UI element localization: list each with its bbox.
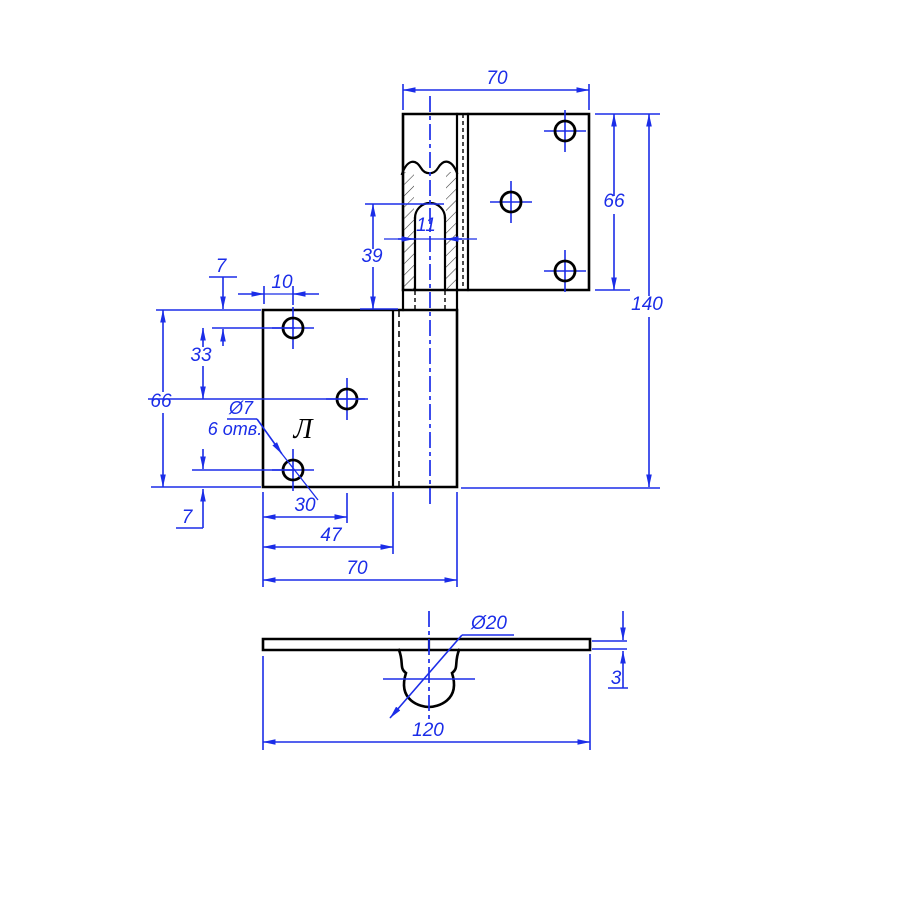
hatch-right-wall xyxy=(446,172,456,290)
dim-knuckle-offset-label: 39 xyxy=(361,246,383,267)
dim-hole-x-far-label: 47 xyxy=(320,525,343,546)
hole xyxy=(490,181,532,223)
dim-hole-edge-bottom: 7 xyxy=(176,449,295,528)
dim-total-length-label: 120 xyxy=(412,720,444,741)
dimensions-front: 70 66 140 39 11 xyxy=(148,68,663,587)
leaf-strip-outline xyxy=(263,639,590,650)
dim-hole-x-far: 47 xyxy=(263,492,393,554)
hole xyxy=(544,250,586,292)
dim-thickness: 3 xyxy=(592,611,628,689)
dim-hole-edge-top: 7 xyxy=(156,256,295,346)
hole-note-diameter: Ø7 xyxy=(228,398,254,418)
hole xyxy=(544,110,586,152)
dim-hole-spacing-label: 33 xyxy=(190,345,212,366)
screw-holes-top-leaf xyxy=(490,110,586,292)
technical-drawing-canvas: Л xyxy=(0,0,900,900)
dim-hole-edge-side-label: 10 xyxy=(271,272,293,293)
front-view: Л xyxy=(263,96,589,504)
dim-hole-edge-bottom-label: 7 xyxy=(182,507,194,528)
dim-thickness-label: 3 xyxy=(611,668,622,689)
drawing-sheet: Л xyxy=(0,0,900,900)
hatch-left-wall xyxy=(404,172,414,290)
dim-left-plate-width: 70 xyxy=(263,492,457,587)
dim-top-width-label: 70 xyxy=(486,68,508,89)
dim-hole-edge-side: 10 xyxy=(238,272,319,305)
dim-pin-slot-label: 11 xyxy=(416,215,436,236)
dim-knuckle-diameter: Ø20 xyxy=(390,613,514,718)
dim-total-height: 140 xyxy=(461,114,663,488)
dim-left-plate-width-label: 70 xyxy=(346,558,368,579)
dim-top-width: 70 xyxy=(403,68,589,110)
dim-plate-height-label: 66 xyxy=(603,191,625,212)
dim-hole-spacing: 33 xyxy=(148,328,365,399)
dim-plate-height: 66 xyxy=(595,114,660,290)
dim-hole-x-near-label: 30 xyxy=(294,495,316,516)
dim-total-length: 120 xyxy=(263,654,590,750)
part-side-label: Л xyxy=(293,414,315,445)
dim-knuckle-diameter-label: Ø20 xyxy=(470,613,507,634)
dim-total-height-label: 140 xyxy=(631,294,663,315)
hole-note-count: 6 отв. xyxy=(208,419,262,439)
dim-left-plate-height-label: 66 xyxy=(150,391,172,412)
top-view: Ø20 120 3 xyxy=(263,611,628,750)
dim-hole-edge-top-label: 7 xyxy=(216,256,228,277)
